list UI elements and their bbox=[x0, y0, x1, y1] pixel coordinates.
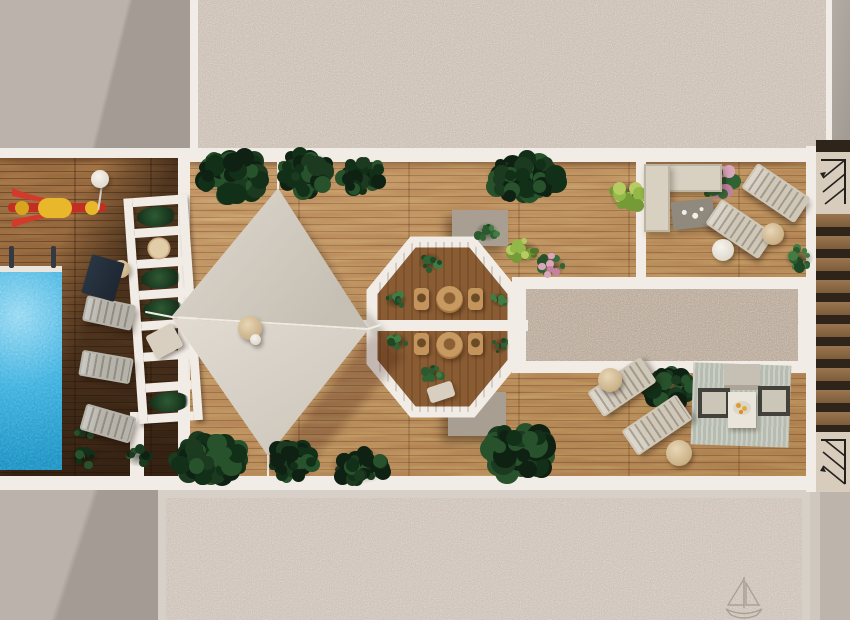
chair bbox=[468, 333, 483, 355]
chair bbox=[414, 333, 429, 355]
lounge-bench bbox=[724, 364, 760, 390]
stair-step bbox=[816, 302, 850, 315]
round-table bbox=[666, 440, 692, 466]
stair-step bbox=[816, 412, 850, 425]
round-table bbox=[762, 223, 784, 245]
chair bbox=[426, 380, 456, 403]
sofa-chaise bbox=[644, 164, 670, 232]
stair-landing-lower bbox=[816, 432, 850, 492]
lounge-seating-set bbox=[692, 362, 796, 450]
chair bbox=[414, 288, 429, 310]
stair-plan-glyph bbox=[816, 152, 850, 212]
chair bbox=[468, 288, 483, 310]
round-table bbox=[712, 239, 734, 261]
stair-step bbox=[816, 368, 850, 381]
stair-step bbox=[816, 280, 850, 293]
stair-step bbox=[816, 214, 850, 227]
side-staircase bbox=[816, 140, 850, 492]
round-table bbox=[436, 286, 463, 313]
stair-plan-glyph bbox=[816, 432, 850, 492]
lounge-armchair bbox=[698, 388, 730, 418]
stair-step bbox=[816, 236, 850, 249]
round-table bbox=[250, 334, 261, 345]
stair-landing-upper bbox=[816, 152, 850, 214]
round-table bbox=[436, 332, 463, 359]
lounge-armchair bbox=[758, 386, 790, 416]
stair-step bbox=[816, 258, 850, 271]
sun-lounger bbox=[741, 163, 811, 224]
round-table bbox=[598, 368, 622, 392]
stair-step bbox=[816, 346, 850, 359]
stair-step bbox=[816, 390, 850, 403]
rooftop-render bbox=[0, 0, 850, 620]
furniture-layer bbox=[0, 0, 850, 620]
sun-lounger bbox=[79, 403, 136, 443]
lounge-side-table bbox=[728, 392, 756, 428]
sun-lounger bbox=[78, 350, 134, 385]
sun-lounger bbox=[587, 357, 657, 418]
round-table bbox=[91, 170, 109, 188]
stair-step bbox=[816, 324, 850, 337]
